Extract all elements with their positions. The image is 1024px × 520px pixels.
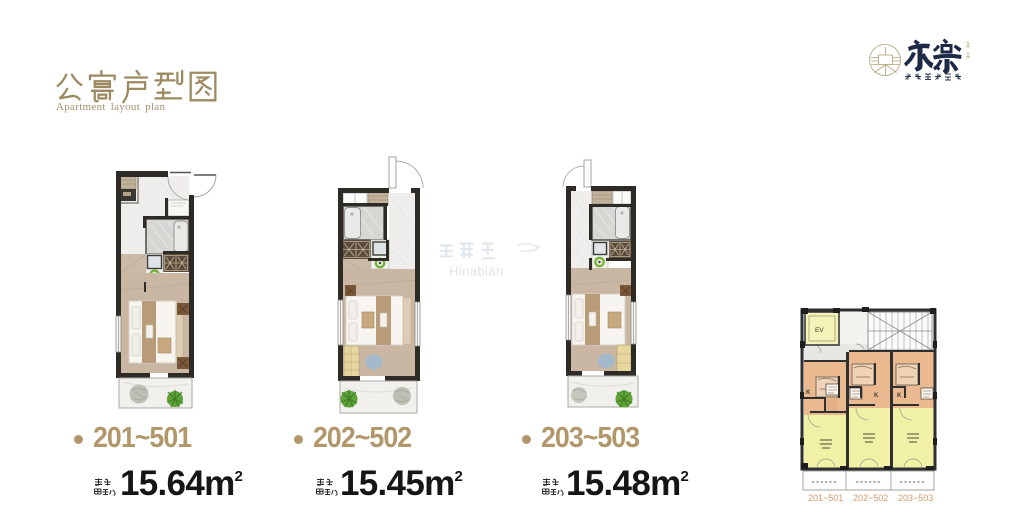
svg-text:202~502: 202~502	[853, 493, 888, 503]
svg-text:K: K	[897, 393, 902, 399]
svg-text:Hinabian: Hinabian	[449, 264, 504, 279]
svg-text:EV: EV	[815, 327, 824, 334]
svg-text:K: K	[874, 393, 879, 399]
svg-text:K: K	[806, 390, 811, 396]
svg-text:201~501: 201~501	[808, 493, 843, 503]
svg-text:203~503: 203~503	[898, 493, 933, 503]
